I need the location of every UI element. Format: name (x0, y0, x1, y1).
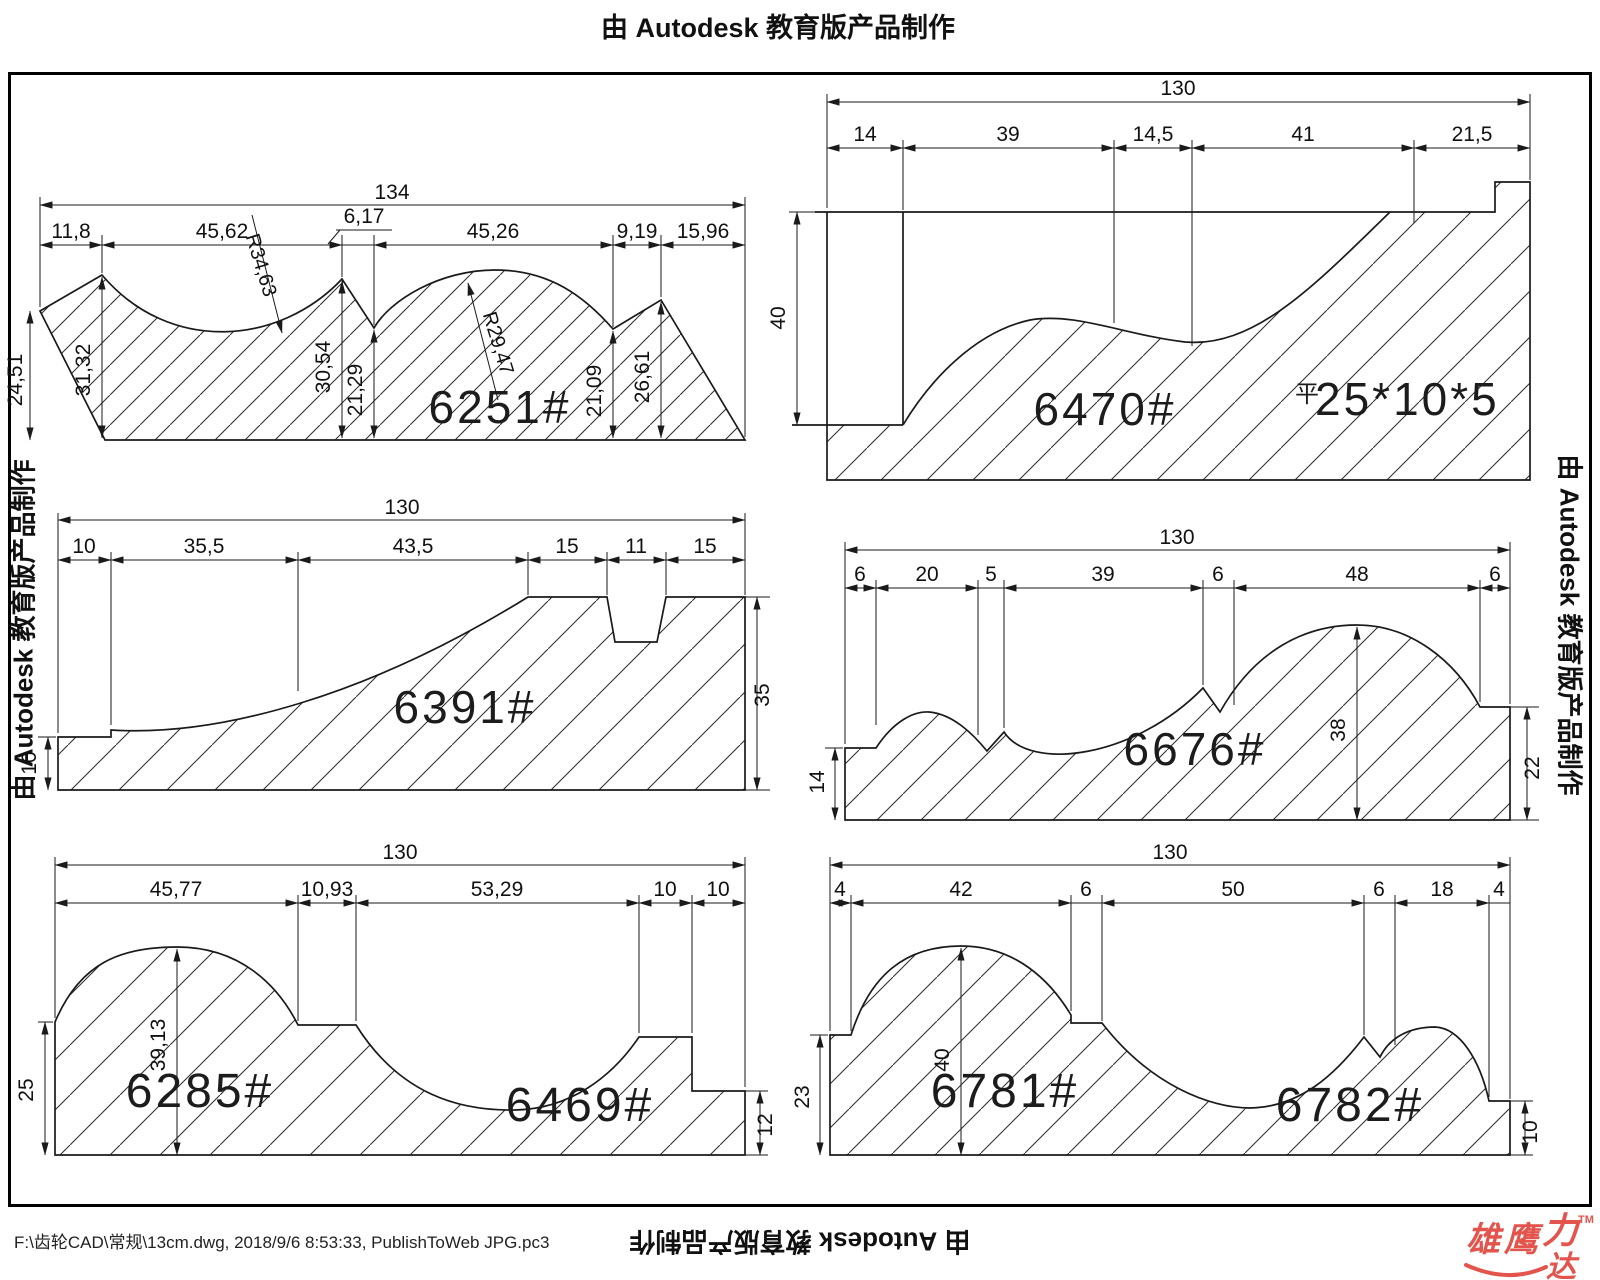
profile-number-6781: 6781# (931, 1065, 1079, 1118)
dim-label: 6 (1080, 878, 1092, 901)
profile-number-6251: 6251# (429, 381, 572, 433)
dim-label: 53,29 (471, 878, 524, 901)
height-label: 10 (18, 751, 41, 774)
dim-label: 45,26 (467, 220, 520, 243)
dim-label: 14 (853, 123, 877, 146)
height-label: 10 (1519, 1120, 1542, 1143)
drawing-6470: 130 14 39 14,5 41 21,5 40 6470# 平 25*10*… (775, 80, 1565, 490)
dim-label: 45,77 (150, 878, 203, 901)
dim-label: 6 (1489, 563, 1501, 586)
drawing-6391: 130 10 35,5 43,5 15 11 15 10 35 6391# (20, 505, 780, 815)
plot-stamp-top: 由 Autodesk 教育版产品制作 (601, 6, 955, 45)
height-label: 30,54 (312, 340, 335, 393)
profile-number-6782: 6782# (1276, 1079, 1424, 1132)
dim-label: 4 (1493, 878, 1505, 901)
dim-label: 11 (625, 535, 647, 558)
height-label: 38 (1327, 718, 1350, 741)
dim-label: 43,5 (393, 535, 434, 558)
height-label: 14 (806, 770, 829, 794)
dim-label: 18 (1430, 878, 1453, 901)
height-label: 21,09 (583, 365, 606, 418)
dim-label: 6 (1212, 563, 1224, 586)
height-label: 12 (754, 1113, 777, 1136)
height-label: 35 (751, 683, 774, 706)
profile-number-6285: 6285# (126, 1065, 274, 1118)
dim-label: 10 (72, 535, 95, 558)
logo-text-main: 雄鹰 (1466, 1221, 1544, 1259)
dim-label: 35,5 (184, 535, 225, 558)
dim-label: 42 (949, 878, 972, 901)
dim-label: 6 (1373, 878, 1385, 901)
profile-number-6391: 6391# (394, 681, 537, 733)
drawing-6781: 130 4 42 6 50 6 18 4 40 23 10 6781# 6782… (805, 845, 1580, 1175)
dim-label: 48 (1345, 563, 1368, 586)
drawing-6285: 130 45,77 10,93 53,29 10 10 39,13 25 12 … (20, 845, 780, 1175)
brand-logo: 雄鹰 力 达 TM (1462, 1205, 1600, 1280)
drawing-6676: 130 6 20 5 39 6 48 6 38 14 22 6676# (815, 530, 1570, 830)
dim-label: 4 (834, 878, 846, 901)
profile-number-6676: 6676# (1124, 723, 1267, 775)
drawing-6251: 134 11,8 45,62 6,17 45,26 9,19 15,96 24,… (20, 185, 765, 460)
height-label: 21,29 (344, 364, 367, 417)
plot-stamp-bottom: 由 Autodesk 教育版产品制作 (630, 1225, 971, 1262)
dim-label: 5 (985, 563, 997, 586)
dim-label: 6,17 (344, 205, 385, 228)
overall-dim-6470: 130 (1160, 77, 1195, 100)
dim-label: 41 (1291, 123, 1314, 146)
height-label: 24,51 (4, 354, 27, 407)
dim-label: 6 (854, 563, 866, 586)
profile-number-6470: 6470# (1034, 383, 1177, 435)
overall-dim-6285: 130 (382, 841, 417, 864)
logo-text-da: 达 (1546, 1251, 1580, 1280)
height-label: 23 (791, 1085, 814, 1108)
dim-label: 11,8 (51, 220, 90, 243)
overall-dim-6251: 134 (374, 181, 409, 204)
dim-label: 10 (706, 878, 729, 901)
dim-label: 45,62 (196, 220, 249, 243)
logo-underline-swoosh (1466, 1265, 1546, 1275)
dim-label: 20 (915, 563, 938, 586)
dim-label: 14,5 (1133, 123, 1174, 146)
dim-label: 39 (996, 123, 1019, 146)
height-label: 26,61 (631, 351, 654, 404)
dim-label: 21,5 (1452, 123, 1493, 146)
dim-label: 10 (653, 878, 676, 901)
height-label: 31,32 (72, 344, 95, 397)
dim-label: 50 (1221, 878, 1244, 901)
overall-dim-6781: 130 (1152, 841, 1187, 864)
height-label: 40 (767, 306, 790, 329)
cad-sheet: 由 Autodesk 教育版产品制作 由 Autodesk 教育版产品制作 由 … (0, 0, 1600, 1280)
dim-label: 10,93 (301, 878, 354, 901)
height-label: 39,13 (147, 1019, 170, 1072)
logo-trademark: TM (1578, 1214, 1594, 1226)
profile-number-6469: 6469# (506, 1079, 654, 1132)
plot-file-path: F:\齿轮CAD\常规\13cm.dwg, 2018/9/6 8:53:33, … (14, 1228, 549, 1253)
dim-label: 15 (555, 535, 578, 558)
overall-dim-6676: 130 (1159, 526, 1194, 549)
dim-label: 9,19 (617, 220, 658, 243)
overall-dim-6391: 130 (384, 496, 419, 519)
profile-hatch-6470 (827, 182, 1530, 480)
dim-label: 15 (693, 535, 716, 558)
radius-label: R34,63 (241, 231, 281, 299)
logo-text-li: 力 (1542, 1210, 1582, 1251)
height-label: 22 (1521, 756, 1544, 779)
dim-label: 39 (1091, 563, 1114, 586)
height-label: 25 (15, 1078, 38, 1101)
dim-label: 15,96 (677, 220, 730, 243)
flat-steel-spec: 25*10*5 (1315, 373, 1500, 425)
